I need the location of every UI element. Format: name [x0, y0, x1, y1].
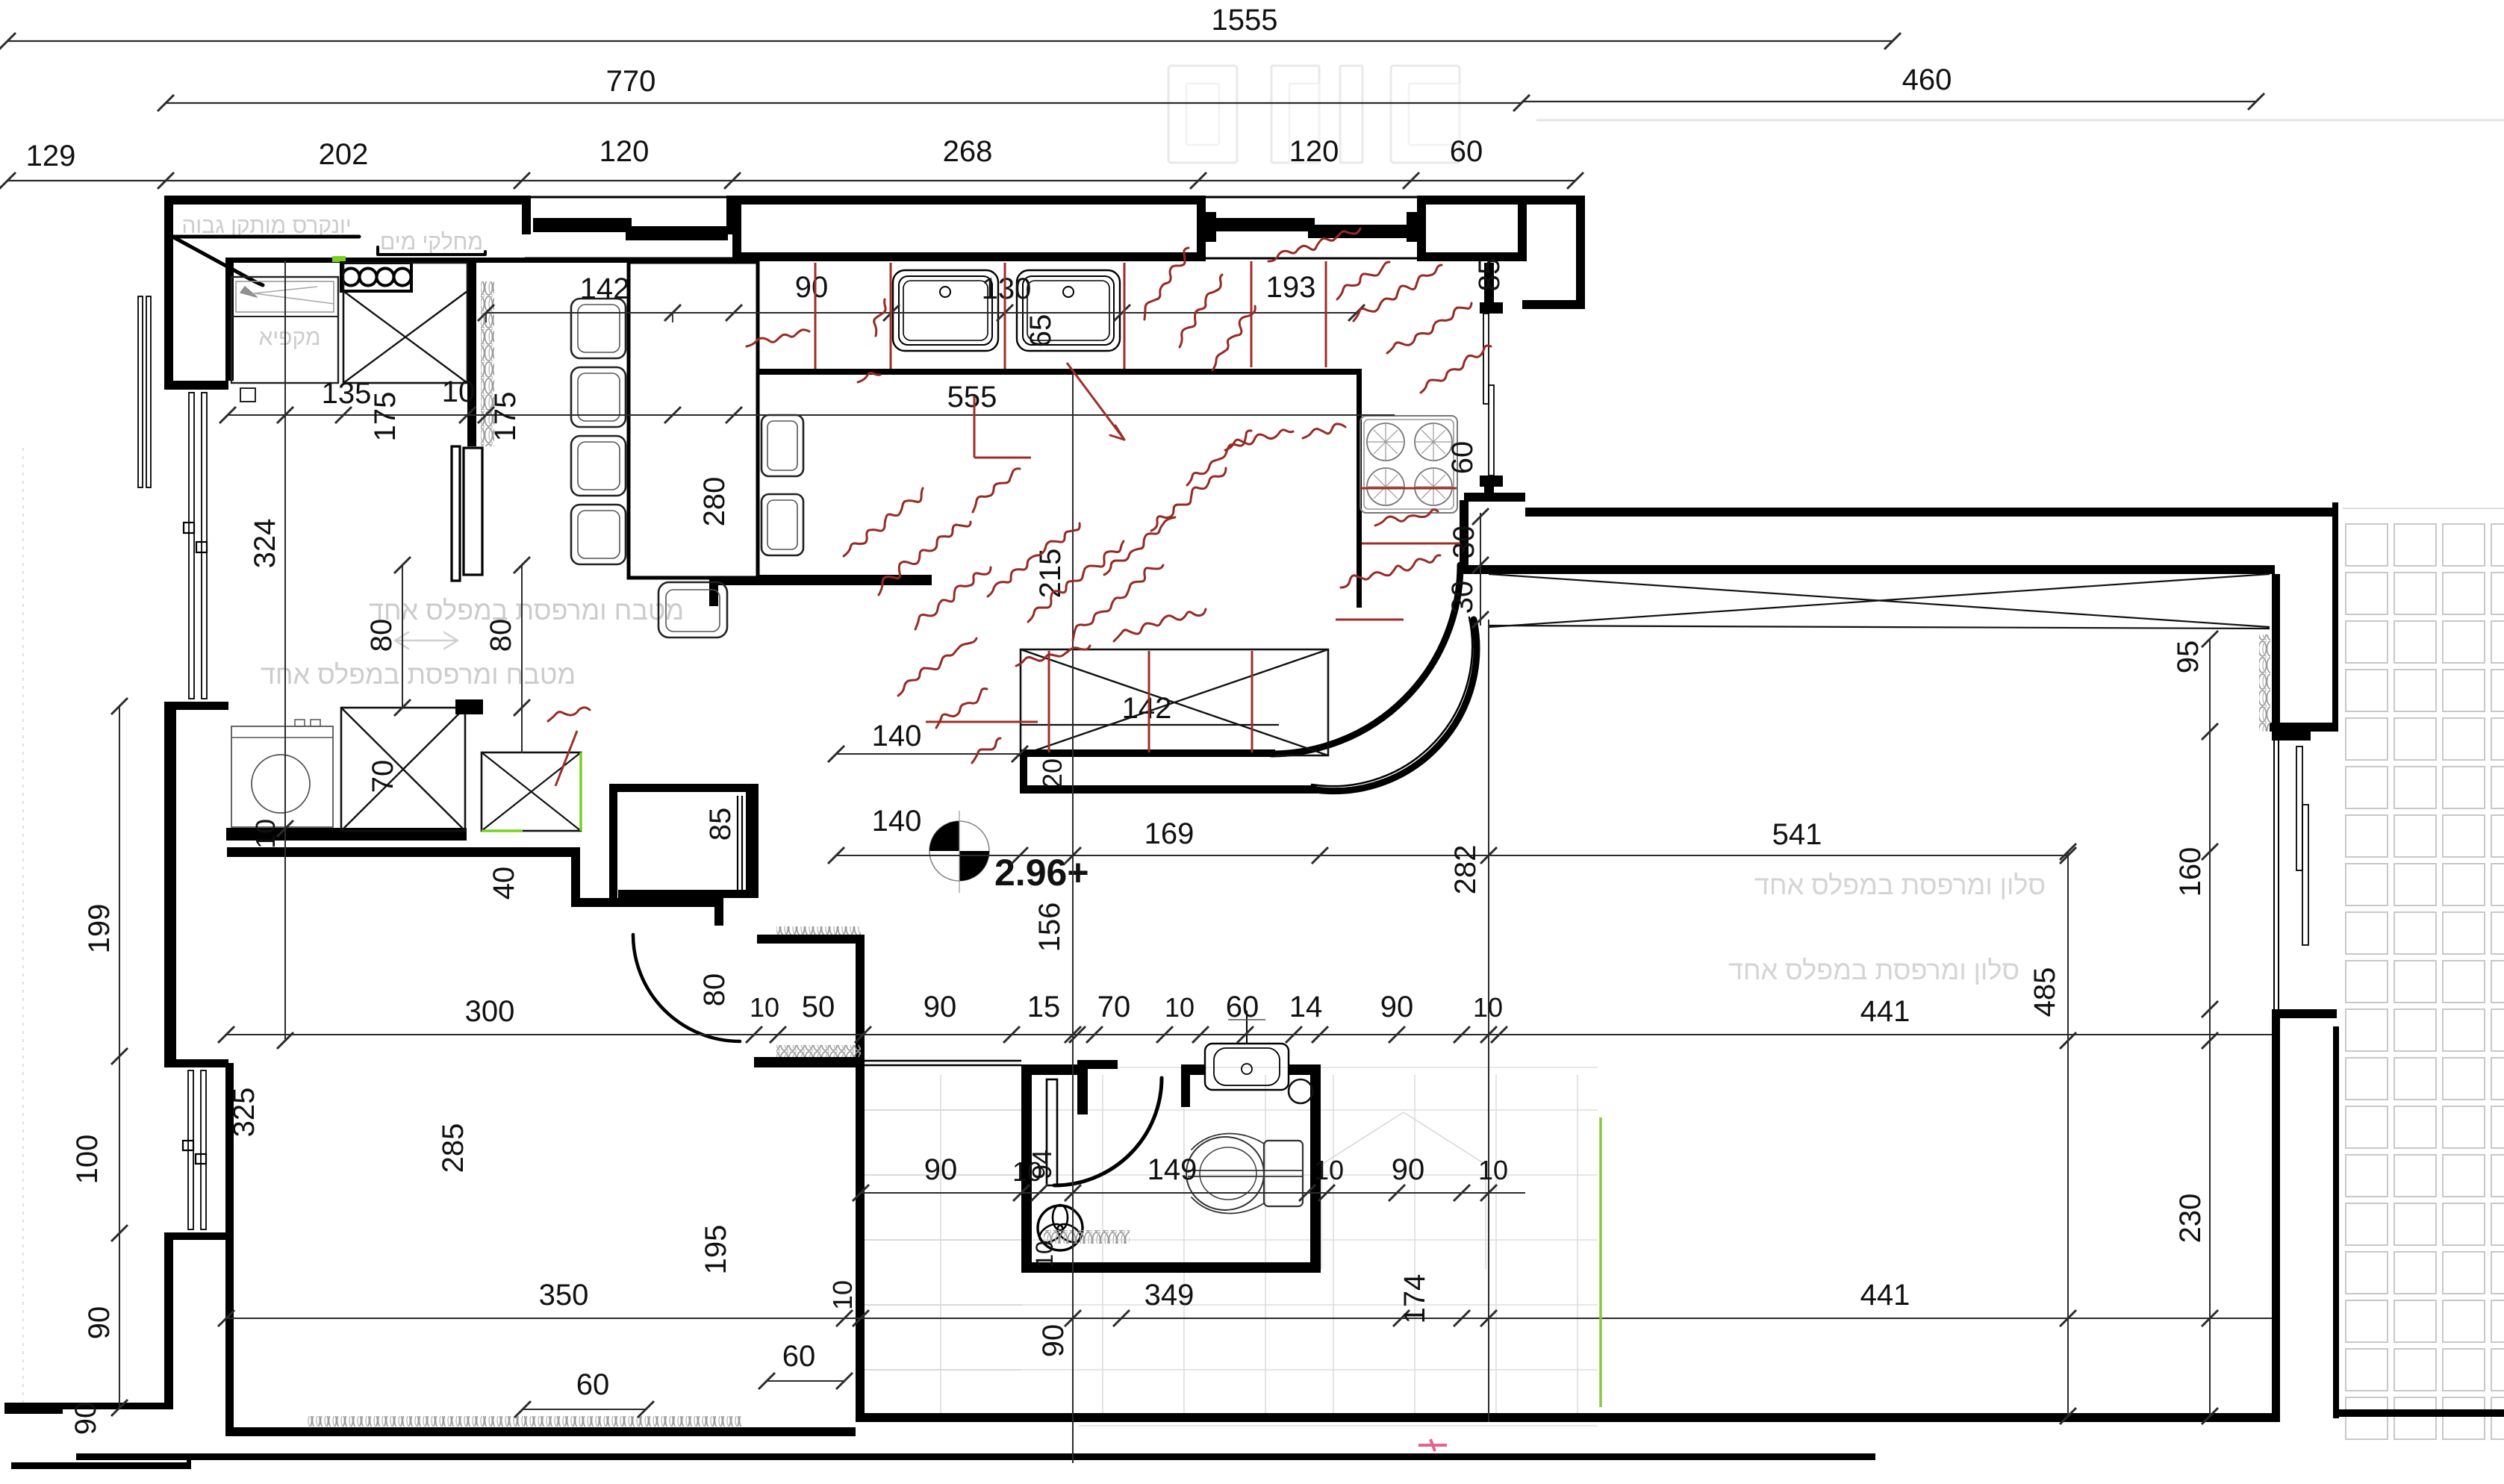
svg-text:30: 30 [1446, 581, 1479, 614]
svg-text:10: 10 [1165, 992, 1195, 1023]
svg-text:90: 90 [1392, 1153, 1425, 1186]
svg-text:129: 129 [26, 140, 76, 172]
svg-text:460: 460 [1902, 63, 1952, 96]
svg-text:מטבח ומרפסת במפלס אחד: מטבח ומרפסת במפלס אחד [261, 659, 576, 690]
svg-text:90: 90 [1037, 1324, 1070, 1358]
svg-text:142: 142 [1122, 692, 1172, 725]
svg-text:770: 770 [606, 65, 656, 98]
svg-text:174: 174 [1398, 1274, 1431, 1324]
svg-text:10: 10 [1473, 992, 1503, 1023]
svg-text:140: 140 [872, 805, 922, 838]
svg-text:175: 175 [369, 392, 402, 442]
svg-text:94: 94 [1027, 1150, 1057, 1179]
svg-text:202: 202 [319, 138, 369, 171]
svg-text:2.96+: 2.96+ [994, 852, 1089, 894]
svg-text:90: 90 [795, 271, 829, 304]
svg-text:70: 70 [367, 760, 399, 794]
svg-text:15: 15 [1027, 991, 1061, 1023]
svg-text:90: 90 [1380, 991, 1414, 1023]
svg-text:10: 10 [1478, 1155, 1508, 1185]
svg-text:60: 60 [782, 1340, 816, 1373]
svg-text:60: 60 [1450, 135, 1483, 168]
svg-text:140: 140 [872, 720, 922, 752]
svg-text:90: 90 [69, 1402, 102, 1435]
svg-text:441: 441 [1860, 1279, 1910, 1312]
svg-text:268: 268 [943, 135, 993, 168]
svg-text:175: 175 [489, 392, 522, 442]
svg-text:195: 195 [700, 1225, 732, 1275]
svg-text:120: 120 [599, 135, 650, 168]
svg-text:169: 169 [1144, 817, 1195, 850]
svg-text:324: 324 [249, 519, 281, 569]
svg-text:350: 350 [539, 1279, 589, 1312]
svg-text:10: 10 [1314, 1155, 1344, 1185]
svg-text:85: 85 [1473, 258, 1506, 292]
svg-text:30: 30 [1448, 526, 1480, 559]
svg-text:349: 349 [1144, 1279, 1195, 1312]
svg-text:10: 10 [442, 375, 476, 408]
svg-text:90: 90 [924, 991, 957, 1023]
svg-text:95: 95 [2172, 640, 2205, 674]
svg-text:10: 10 [1031, 1241, 1058, 1268]
svg-text:285: 285 [437, 1123, 470, 1173]
svg-text:1555: 1555 [1212, 4, 1278, 37]
svg-text:10: 10 [750, 992, 779, 1023]
svg-text:230: 230 [2174, 1194, 2207, 1244]
svg-text:130: 130 [982, 272, 1032, 305]
svg-text:מקפיא: מקפיא [259, 325, 321, 350]
svg-text:מחלקי מים: מחלקי מים [380, 230, 483, 255]
svg-text:60: 60 [1446, 441, 1479, 475]
svg-text:20: 20 [1037, 758, 1068, 788]
svg-text:142: 142 [580, 272, 630, 305]
svg-text:10: 10 [250, 819, 281, 849]
svg-text:555: 555 [947, 381, 997, 414]
svg-text:40: 40 [488, 867, 520, 900]
svg-text:199: 199 [83, 904, 116, 954]
svg-text:280: 280 [698, 477, 731, 527]
svg-text:282: 282 [1449, 845, 1482, 895]
svg-text:135: 135 [322, 377, 372, 410]
svg-text:80: 80 [365, 619, 398, 652]
svg-text:300: 300 [465, 995, 515, 1028]
svg-text:סלון ומרפסת במפלס אחד: סלון ומרפסת במפלס אחד [1728, 955, 2019, 985]
svg-text:יונקרס מותקן גבוה: יונקרס מותקן גבוה [181, 213, 351, 238]
svg-text:90: 90 [83, 1306, 116, 1340]
svg-text:149: 149 [1147, 1153, 1198, 1186]
svg-text:120: 120 [1289, 135, 1339, 168]
svg-text:85: 85 [704, 808, 737, 841]
svg-text:מטבח ומרפסת במפלס אחד: מטבח ומרפסת במפלס אחד [369, 595, 684, 626]
svg-text:160: 160 [2174, 847, 2207, 897]
svg-text:70: 70 [1097, 991, 1131, 1023]
svg-text:485: 485 [2028, 967, 2061, 1017]
svg-text:60: 60 [576, 1368, 610, 1401]
svg-text:541: 541 [1772, 818, 1822, 851]
svg-text:325: 325 [228, 1088, 261, 1138]
svg-text:60: 60 [1226, 991, 1259, 1023]
svg-text:156: 156 [1033, 902, 1066, 953]
svg-text:80: 80 [698, 973, 731, 1007]
svg-text:65: 65 [1024, 314, 1057, 348]
svg-text:סלון ומרפסת במפלס אחד: סלון ומרפסת במפלס אחד [1754, 870, 2046, 900]
svg-text:193: 193 [1266, 271, 1316, 304]
svg-text:14: 14 [1289, 991, 1323, 1023]
svg-text:80: 80 [485, 619, 517, 652]
svg-text:90: 90 [924, 1153, 958, 1186]
svg-text:100: 100 [71, 1135, 104, 1185]
svg-text:441: 441 [1860, 995, 1910, 1028]
svg-text:50: 50 [802, 991, 835, 1023]
svg-text:10: 10 [827, 1280, 858, 1310]
